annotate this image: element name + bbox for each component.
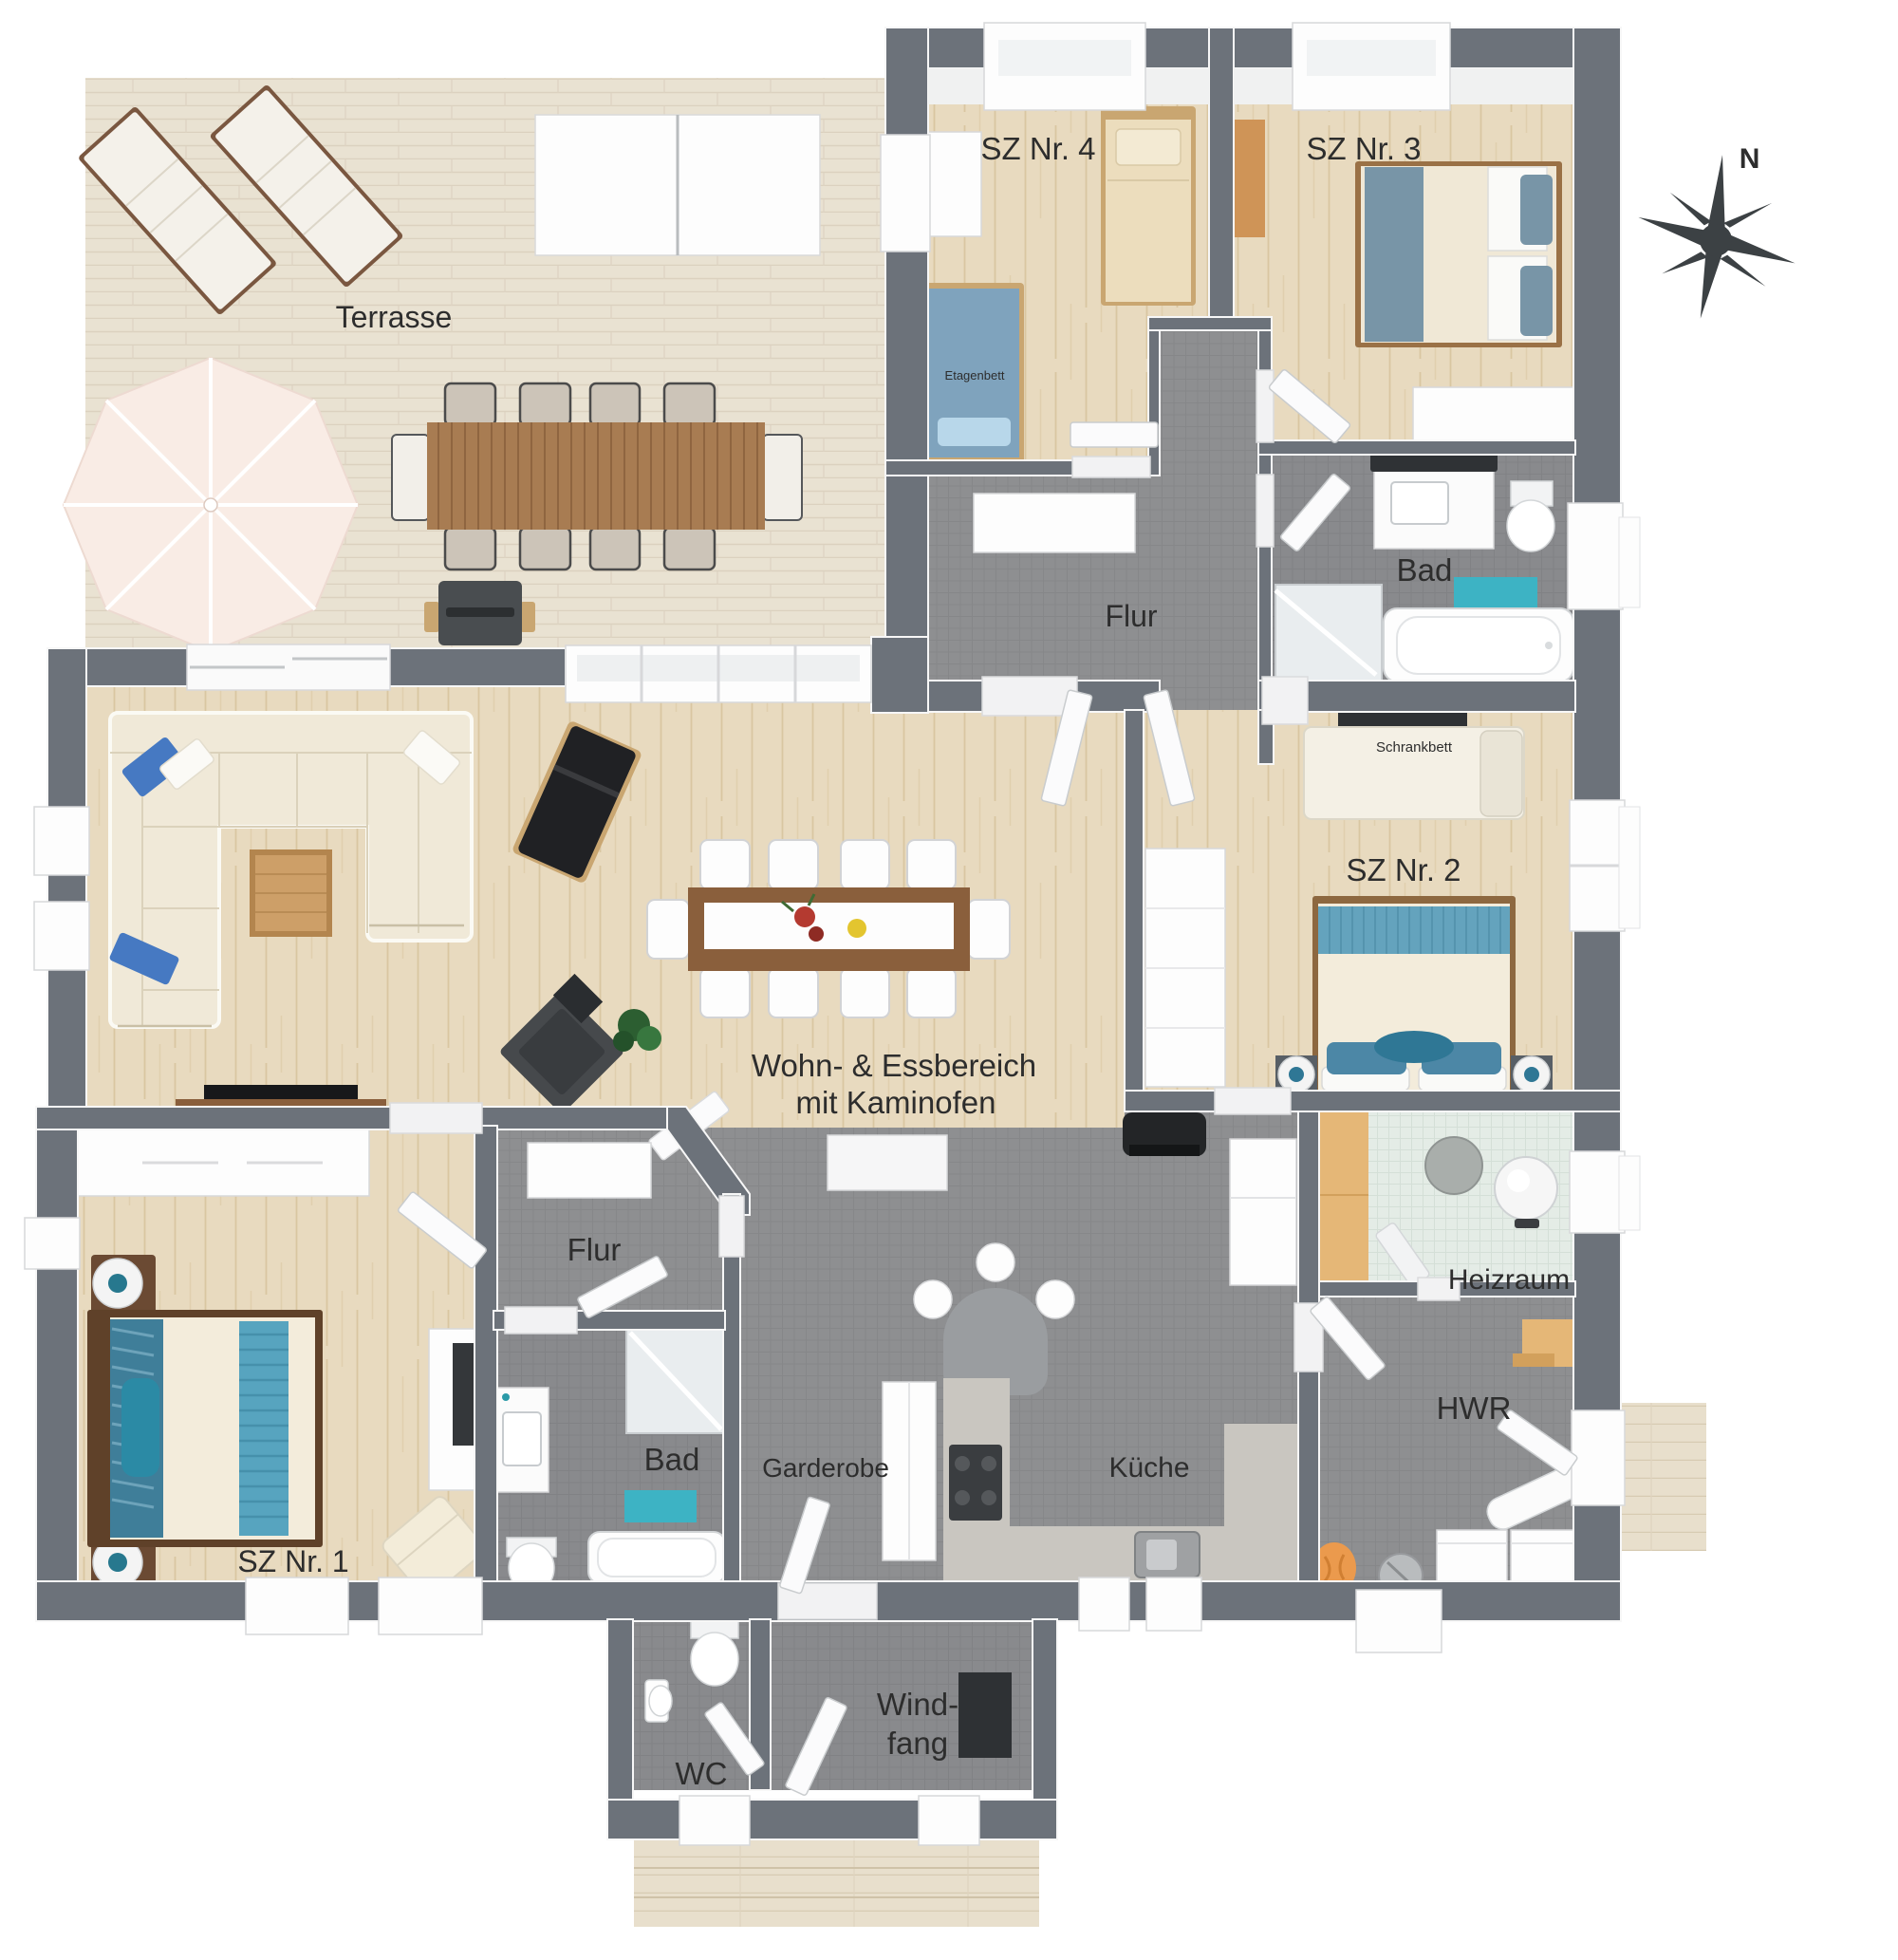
svg-text:Schrankbett: Schrankbett xyxy=(1376,739,1453,756)
svg-text:SZ Nr. 1: SZ Nr. 1 xyxy=(237,1544,348,1578)
svg-text:Wind-: Wind- xyxy=(877,1687,958,1722)
svg-text:mit Kaminofen: mit Kaminofen xyxy=(796,1085,996,1120)
svg-text:WC: WC xyxy=(676,1756,728,1791)
svg-text:N: N xyxy=(1740,143,1760,175)
svg-text:SZ Nr. 3: SZ Nr. 3 xyxy=(1306,131,1421,166)
svg-text:Wohn- & Essbereich: Wohn- & Essbereich xyxy=(752,1048,1036,1083)
svg-text:SZ Nr. 4: SZ Nr. 4 xyxy=(980,131,1095,166)
svg-text:HWR: HWR xyxy=(1437,1391,1512,1426)
svg-text:Garderobe: Garderobe xyxy=(762,1453,889,1483)
svg-text:SZ Nr. 2: SZ Nr. 2 xyxy=(1346,852,1461,887)
svg-text:Bad: Bad xyxy=(1397,552,1453,588)
svg-text:Flur: Flur xyxy=(568,1232,622,1267)
svg-text:Flur: Flur xyxy=(1105,599,1157,633)
svg-text:fang: fang xyxy=(887,1726,948,1761)
svg-text:Bad: Bad xyxy=(644,1442,700,1477)
svg-text:Heizraum: Heizraum xyxy=(1448,1264,1570,1296)
svg-text:Etagenbett: Etagenbett xyxy=(945,368,1005,383)
svg-text:Küche: Küche xyxy=(1108,1452,1189,1484)
svg-text:Terrasse: Terrasse xyxy=(336,300,453,334)
